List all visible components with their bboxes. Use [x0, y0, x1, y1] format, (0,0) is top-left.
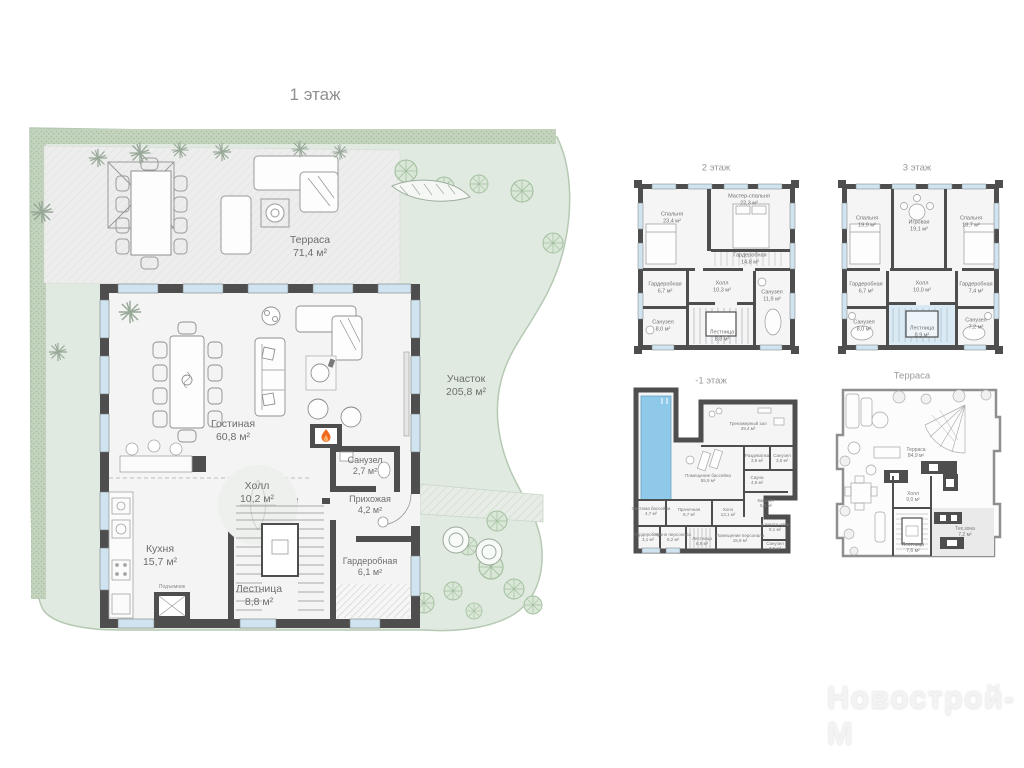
room-label-b-gym: Тренажерный зал29,4 м² [729, 421, 766, 431]
radiator [404, 352, 409, 436]
room-label-f3-wardrobe-left: Гардеробная6,7 м² [849, 281, 882, 294]
indoor-plant [119, 301, 141, 323]
room-label-b-laundry: Прачечная9,7 м² [678, 507, 701, 517]
room-label-r-hall: Холл9,0 м² [906, 491, 919, 503]
room-label-f2-wardrobe-big: Гардеробная14,8 м² [733, 252, 766, 265]
roof-title: Терраса [894, 371, 930, 382]
room-label-f2-bedroom: Спальня23,4 м² [661, 211, 683, 224]
room-label-b-staff-kitchen: Кухня персонала8,2 м² [655, 532, 691, 542]
closet-shelving [336, 584, 410, 618]
room-label-b-pool-system: Система бассейна4,7 м² [632, 506, 671, 516]
room-label-f3-bedroom-right: Спальня18,7 м² [960, 215, 982, 228]
room-label-f3-bath-left: Санузел8,0 м² [853, 319, 874, 332]
room-label-b-stairs: Лестница8,9 м² [692, 536, 712, 546]
room-label-terrace: Терраса71,4 м² [290, 234, 330, 260]
entry-door-opening [411, 494, 420, 526]
room-label-b-sauna: Сауна4,9 м² [751, 475, 764, 485]
room-label-b-nanny: Комната няни9,1 м² [761, 522, 790, 532]
room-label-f2-stairs: Лестница8,8 м² [710, 329, 734, 342]
lift-shaft [154, 592, 190, 620]
room-label-f3-bath-right: Санузел7,2 м² [965, 317, 986, 330]
room-label-f3-hall: Холл10,0 м² [913, 280, 931, 293]
room-label-bath1: Санузел2,7 м² [347, 455, 382, 478]
floor1-title: 1 этаж [290, 85, 341, 105]
room-label-f2-wardrobe-small: Гардеробная6,7 м² [648, 281, 681, 294]
room-label-kitchen: Кухня15,7 м² [143, 543, 177, 569]
swimming-pool [641, 396, 671, 500]
garden-border-band [31, 129, 556, 144]
room-label-b-bath-bottom: Санузел3,6 м² [766, 541, 784, 551]
room-label-plot: Участок205,8 м² [446, 373, 486, 399]
room-label-f3-playroom: Игровая19,1 м² [909, 219, 930, 232]
room-label-living: Гостиная60,8 м² [211, 418, 255, 444]
room-label-f2-hall: Холл10,3 м² [713, 280, 731, 293]
room-label-b-staff-room: Помещение персонала15,9 м² [716, 533, 765, 543]
room-label-b-pool-room: Помещение бассейна55,9 м² [685, 473, 731, 483]
room-label-f2-bath-big: Санузел11,9 м² [761, 289, 782, 302]
room-label-entry: Прихожая4,2 м² [349, 494, 391, 517]
room-label-r-tech: Тех.зона7,2 м² [955, 526, 975, 538]
plan-roof-terrace [837, 390, 1000, 556]
watermark: Новострой-М [827, 680, 1015, 752]
floor2-title: 2 этаж [702, 163, 730, 174]
sofa-straight [255, 338, 285, 416]
floor3-title: 3 этаж [903, 163, 931, 174]
room-label-lift: Подъемник [159, 584, 185, 590]
room-label-f3-wardrobe-right: Гардеробная7,4 м² [959, 281, 992, 294]
room-label-stairs1: Лестница8,8 м² [236, 583, 282, 609]
room-label-b-office: Кабинет5,0 м² [757, 498, 774, 508]
basement-title: -1 этаж [695, 376, 727, 387]
armchair-rug [306, 356, 336, 390]
room-label-f3-stairs: Лестница8,9 м² [910, 325, 934, 338]
room-label-r-stairs: Лестница7,6 м² [902, 542, 924, 554]
room-label-hall1: Холл10,2 м² [240, 480, 274, 506]
room-label-b-changing: Раздевалка3,9 м² [745, 453, 769, 463]
room-label-b-bath-top: Санузел3,6 м² [773, 453, 791, 463]
floorplan-sheet: 1 этаж 2 этаж 3 этаж -1 этаж Терраса Тер… [0, 0, 1024, 768]
room-label-f2-bath-small: Санузел8,0 м² [652, 319, 673, 332]
room-label-r-terrace: Терраса84,9 м² [906, 447, 925, 459]
room-label-f2-master: Мастер-спальня22,3 м² [728, 193, 770, 206]
plan-drawing [0, 0, 1024, 768]
room-label-wardrobe1: Гардеробная6,1 м² [343, 556, 397, 579]
room-label-f3-bedroom-left: Спальня19,9 м² [856, 215, 878, 228]
fireplace-icon [310, 424, 342, 448]
room-label-b-hall: Холл13,1 м² [721, 507, 736, 517]
